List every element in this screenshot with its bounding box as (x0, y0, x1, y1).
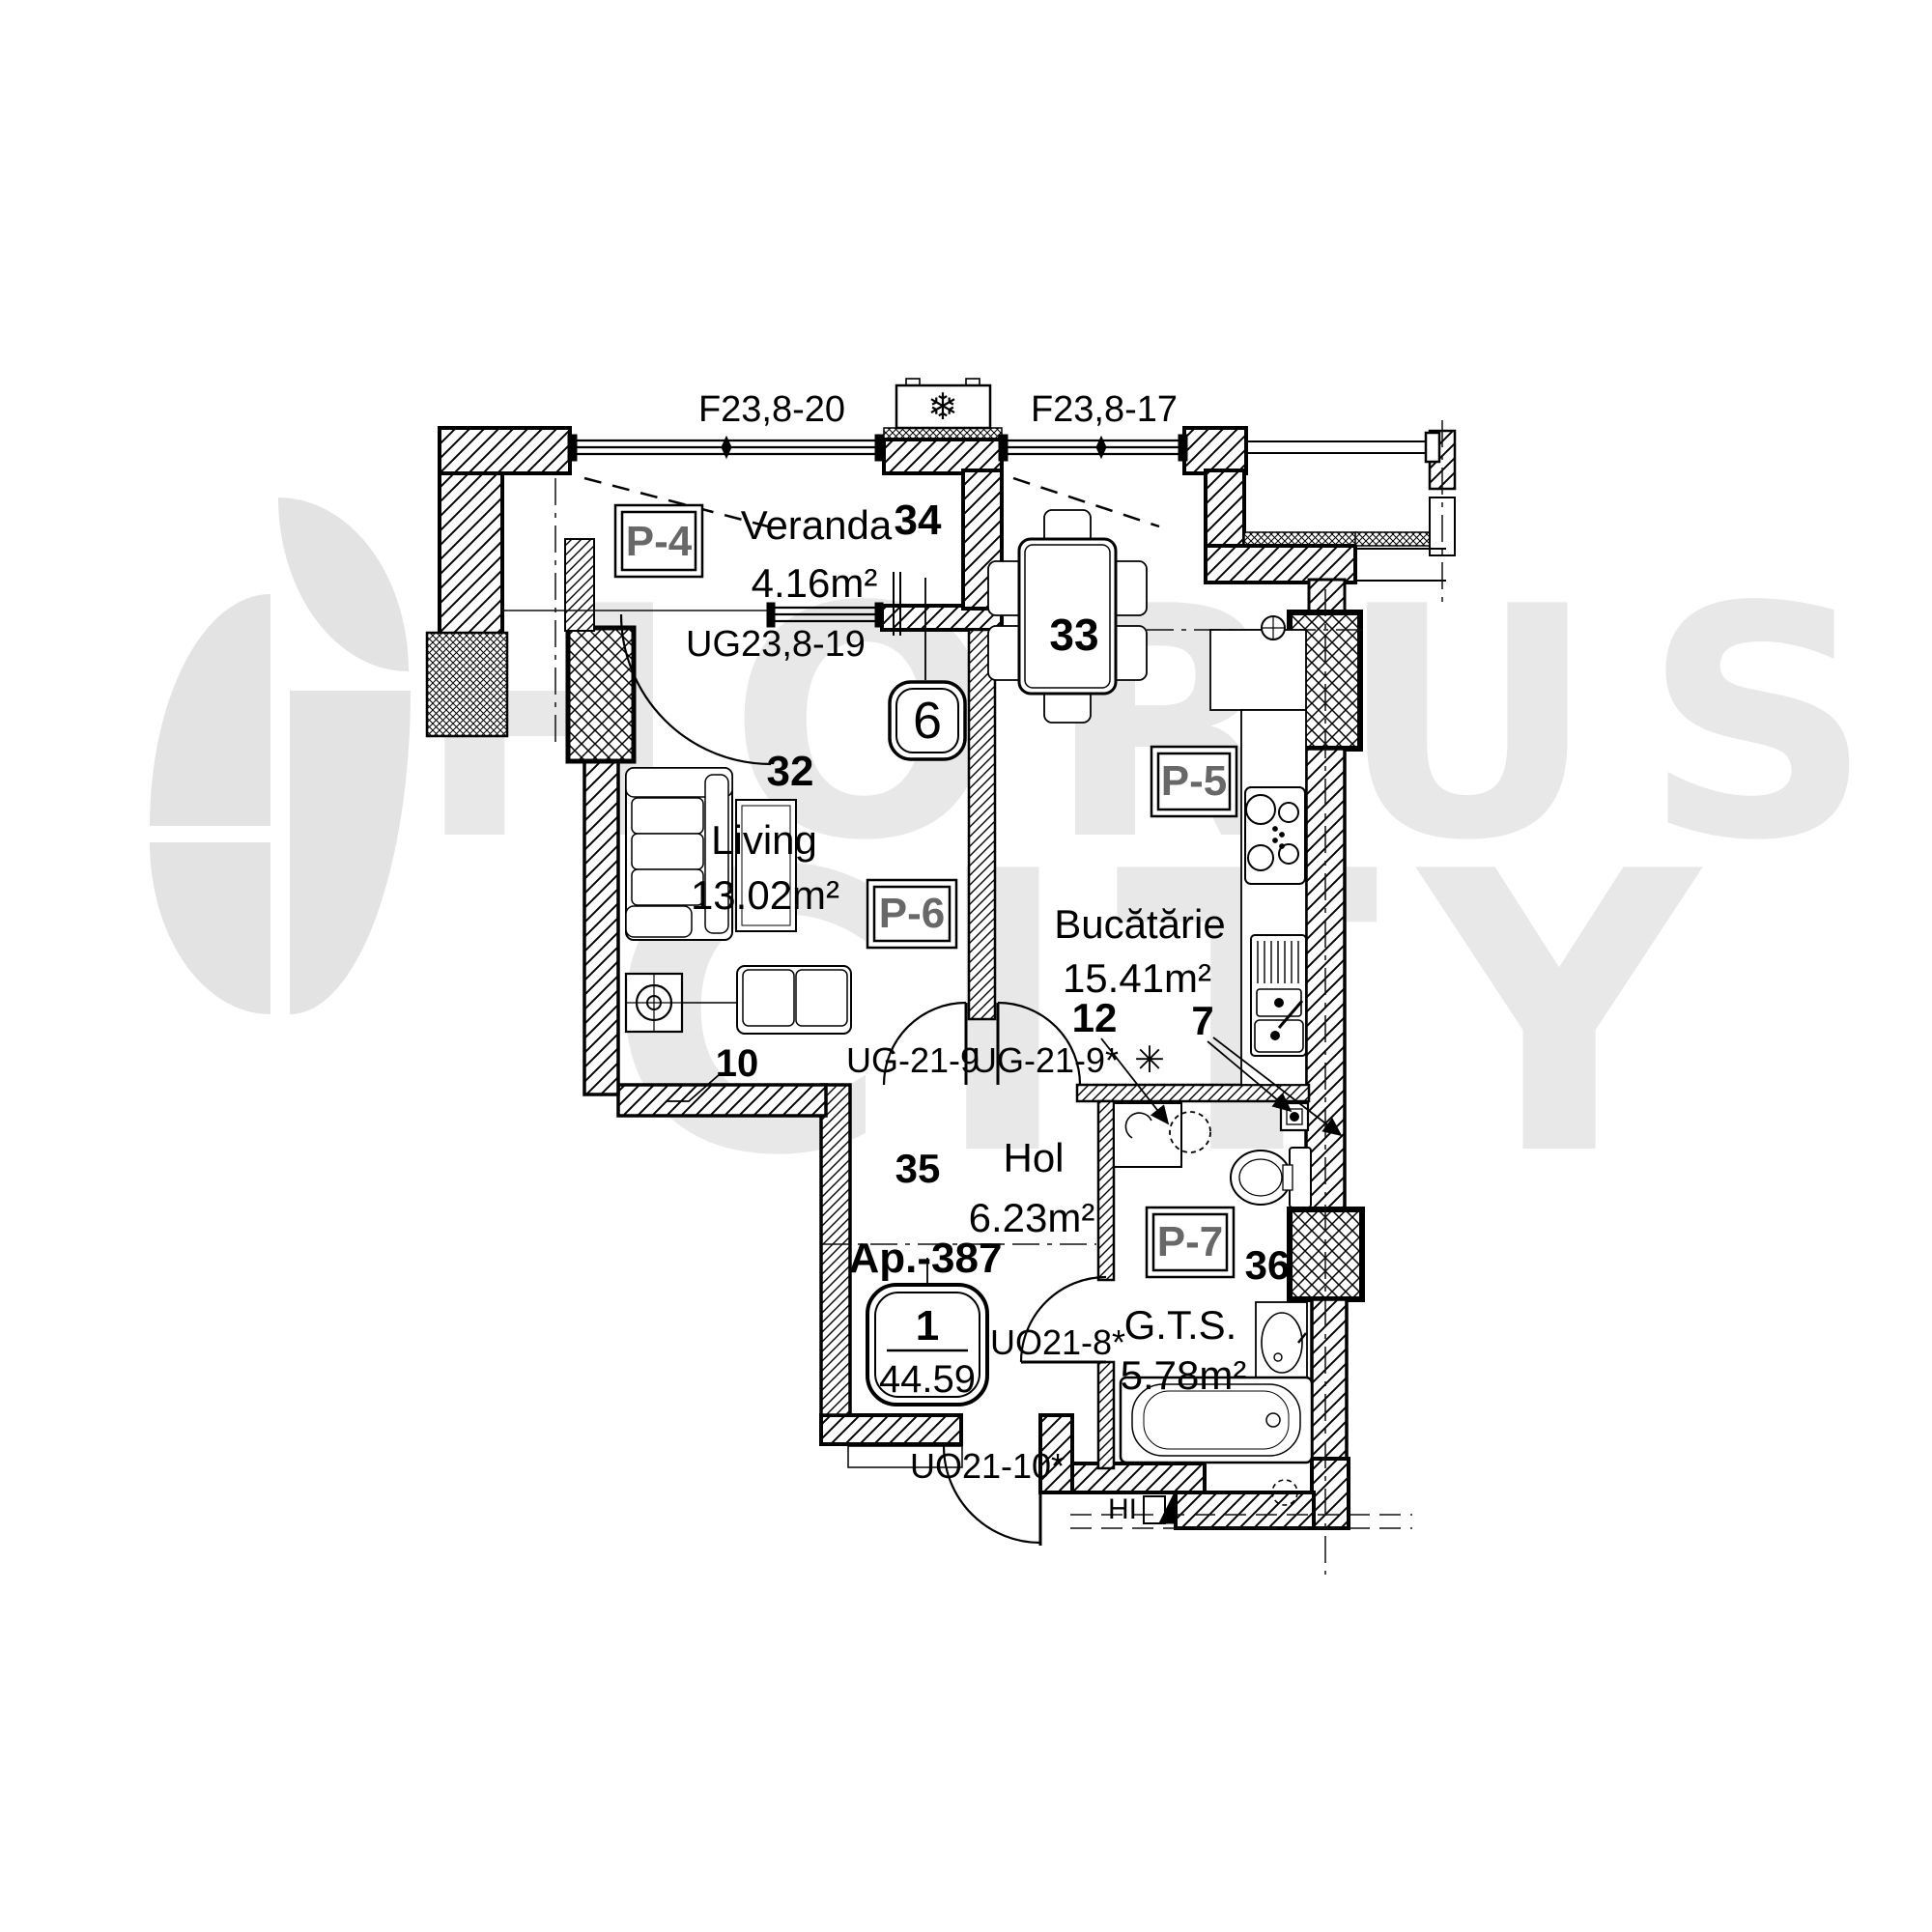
marker-p4: P-4 (626, 518, 693, 565)
door-label-ug23-8-19: UG23,8-19 (686, 624, 866, 665)
window-f23-8-17 (999, 435, 1187, 461)
room-number-hall: 35 (895, 1146, 941, 1191)
floor-plan-drawing: F23,8-20 F23,8-17 Veranda 34 4.16m² UG23… (0, 0, 1932, 1932)
room-number-bathroom: 36 (1245, 1242, 1291, 1288)
room-name-hall: Hol (1003, 1135, 1064, 1180)
washing-machine-icon (1114, 1103, 1210, 1167)
room-area-bathroom: 5.78m² (1121, 1352, 1247, 1398)
hydrant-label: HI (1108, 1493, 1137, 1525)
toilet-icon (1231, 1148, 1311, 1207)
room-area-kitchen: 15.41m² (1063, 955, 1211, 1001)
floor-lamp (626, 974, 682, 1032)
room-area-veranda: 4.16m² (752, 560, 878, 606)
floor-plan-page: HORUS CITY (0, 0, 1932, 1932)
window-label-f23-8-20: F23,8-20 (698, 389, 845, 430)
cooktop-icon (1245, 787, 1305, 884)
door-label-uo21-8: UO21-8* (990, 1322, 1125, 1362)
hall-left-wall (821, 1085, 850, 1415)
apartment-label: Ap.-387 (849, 1235, 1003, 1282)
marker-p6: P-6 (879, 890, 945, 937)
room-name-veranda: Veranda (741, 502, 893, 548)
loveseat (737, 966, 851, 1034)
gts-bottom-wall (1176, 1492, 1314, 1528)
doors (621, 614, 1106, 1546)
top-right-corner (1184, 428, 1246, 473)
snowflake-icon: ❄ (927, 385, 958, 428)
window-label-f23-8-17: F23,8-17 (1031, 389, 1178, 430)
living-kitchen-divider (969, 630, 995, 1019)
apartment-badge-number: 1 (916, 1302, 939, 1350)
kitchen-bottom-wall (1077, 1085, 1309, 1101)
bath-sink-icon (1256, 1302, 1307, 1384)
window-neighbour (1246, 433, 1439, 462)
note-7: 7 (1191, 998, 1213, 1043)
room-name-living: Living (711, 817, 817, 863)
room-area-living: 13.02m² (691, 872, 839, 918)
hall-gts-wall (1098, 1101, 1114, 1280)
door-label-ug-21-9: UG-21-9 (846, 1040, 980, 1080)
note-12: 12 (1072, 995, 1118, 1040)
living-bottom-wall (618, 1085, 826, 1116)
marker-p7: P-7 (1157, 1218, 1223, 1265)
room-name-kitchen: Bucătărie (1054, 901, 1225, 947)
window-f23-8-20 (568, 435, 884, 461)
door-label-uo21-10: UO21-10* (910, 1446, 1065, 1486)
room-name-bathroom: G.T.S. (1124, 1302, 1237, 1348)
door-label-ug-21-9s: UG-21-9* (972, 1040, 1119, 1080)
room-area-hall: 6.23m² (969, 1195, 1095, 1240)
top-pier (884, 440, 1002, 473)
apartment-badge-area: 44.59 (879, 1358, 976, 1401)
hall-bottom-wall (821, 1415, 961, 1444)
room-number-kitchen: 33 (1049, 610, 1098, 660)
marker-p5: P-5 (1161, 757, 1227, 805)
note-10: 10 (716, 1042, 759, 1085)
room-number-living: 32 (767, 748, 814, 795)
circle-badge-number: 6 (913, 692, 942, 750)
block-insulated (427, 633, 507, 736)
kitchen-sink-icon (1251, 935, 1306, 1056)
top-left-corner (440, 428, 570, 473)
asterisk-marker: ✳ (1134, 1038, 1165, 1081)
room-number-veranda: 34 (895, 497, 942, 544)
living-left-wall (584, 761, 618, 1094)
